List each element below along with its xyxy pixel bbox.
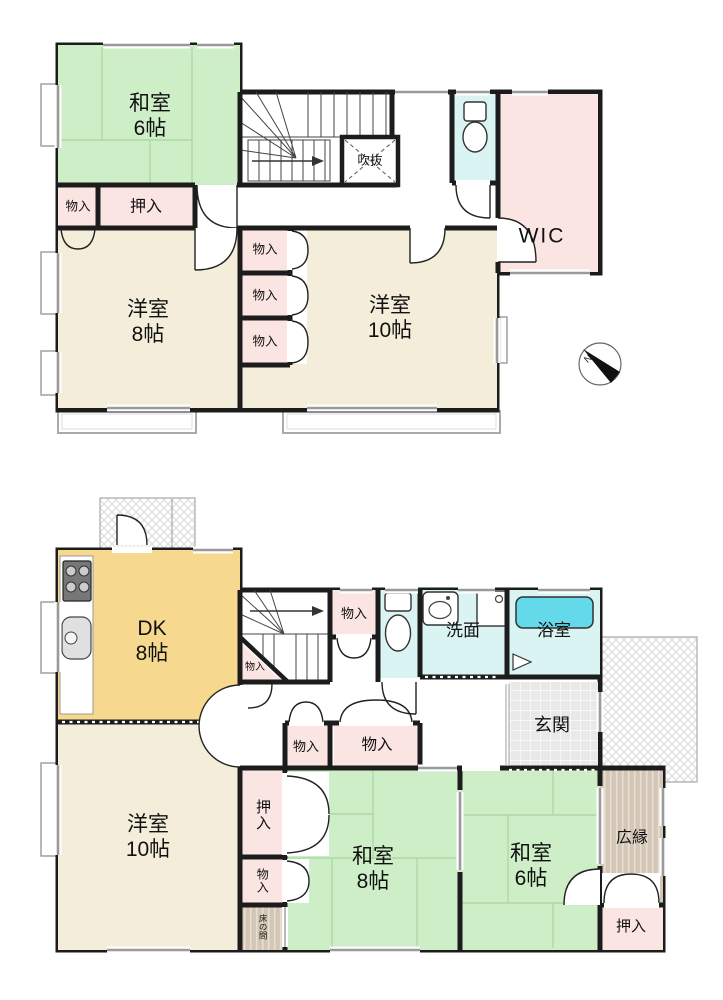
toilet-icon-1f [385, 593, 411, 651]
label-monoire-hall-2: 物入 [361, 737, 392, 756]
room-label-yoshitsu10-1f: 洋室10帖 [126, 812, 170, 862]
toilet-icon-2f [463, 102, 487, 152]
label-monoire3-2f: 物入 [252, 335, 277, 350]
compass-icon: N [579, 343, 621, 385]
label-oshiire-veranda: 押入 [616, 918, 646, 936]
kitchen-sink-icon [62, 617, 91, 659]
label-monoire-corner-2f: 物入 [65, 200, 90, 215]
room-label-yokushitsu: 浴室 [537, 621, 571, 641]
room-label-genkan: 玄関 [534, 715, 570, 737]
room-label-washitsu8-1f: 和室8帖 [352, 844, 394, 894]
floor-plan-page: N 和室6帖 物入 押入 洋室8帖 物入 物入 物入 洋室10帖 吹抜 WIC … [0, 0, 723, 1000]
stove-icon [63, 561, 91, 601]
room-label-hiroen: 広縁 [616, 828, 648, 847]
room-label-senmen: 洗面 [446, 621, 480, 641]
room-label-yoshitsu8-2f: 洋室8帖 [127, 297, 169, 347]
label-monoire2-2f: 物入 [252, 289, 277, 304]
label-monoire-side: 物入 [255, 868, 269, 894]
label-oshiire-side: 押入 [253, 799, 271, 831]
second-floor-plan [41, 45, 600, 433]
window-sill [500, 317, 507, 363]
room-label-washitsu6-1f: 和室6帖 [510, 841, 552, 891]
label-fukinuke: 吹抜 [357, 154, 382, 169]
label-monoire-by-stair: 物入 [341, 606, 367, 622]
label-tokonoma: 床の間 [258, 914, 268, 940]
room-label-dk: DK8帖 [136, 616, 169, 666]
kitchen-counter [60, 556, 93, 714]
label-monoire1-2f: 物入 [252, 243, 277, 258]
room-label-yoshitsu10-2f: 洋室10帖 [368, 293, 412, 343]
entrance-porch-hatch [598, 637, 697, 782]
room-label-washitsu6-2f: 和室6帖 [129, 91, 171, 141]
label-monoire-hall-1: 物入 [293, 739, 319, 755]
room-label-wic: WIC [519, 223, 566, 248]
label-monoire-understair: 物入 [245, 662, 265, 674]
label-oshiire-2f: 押入 [130, 197, 162, 216]
washer-pan-icon [477, 591, 506, 626]
